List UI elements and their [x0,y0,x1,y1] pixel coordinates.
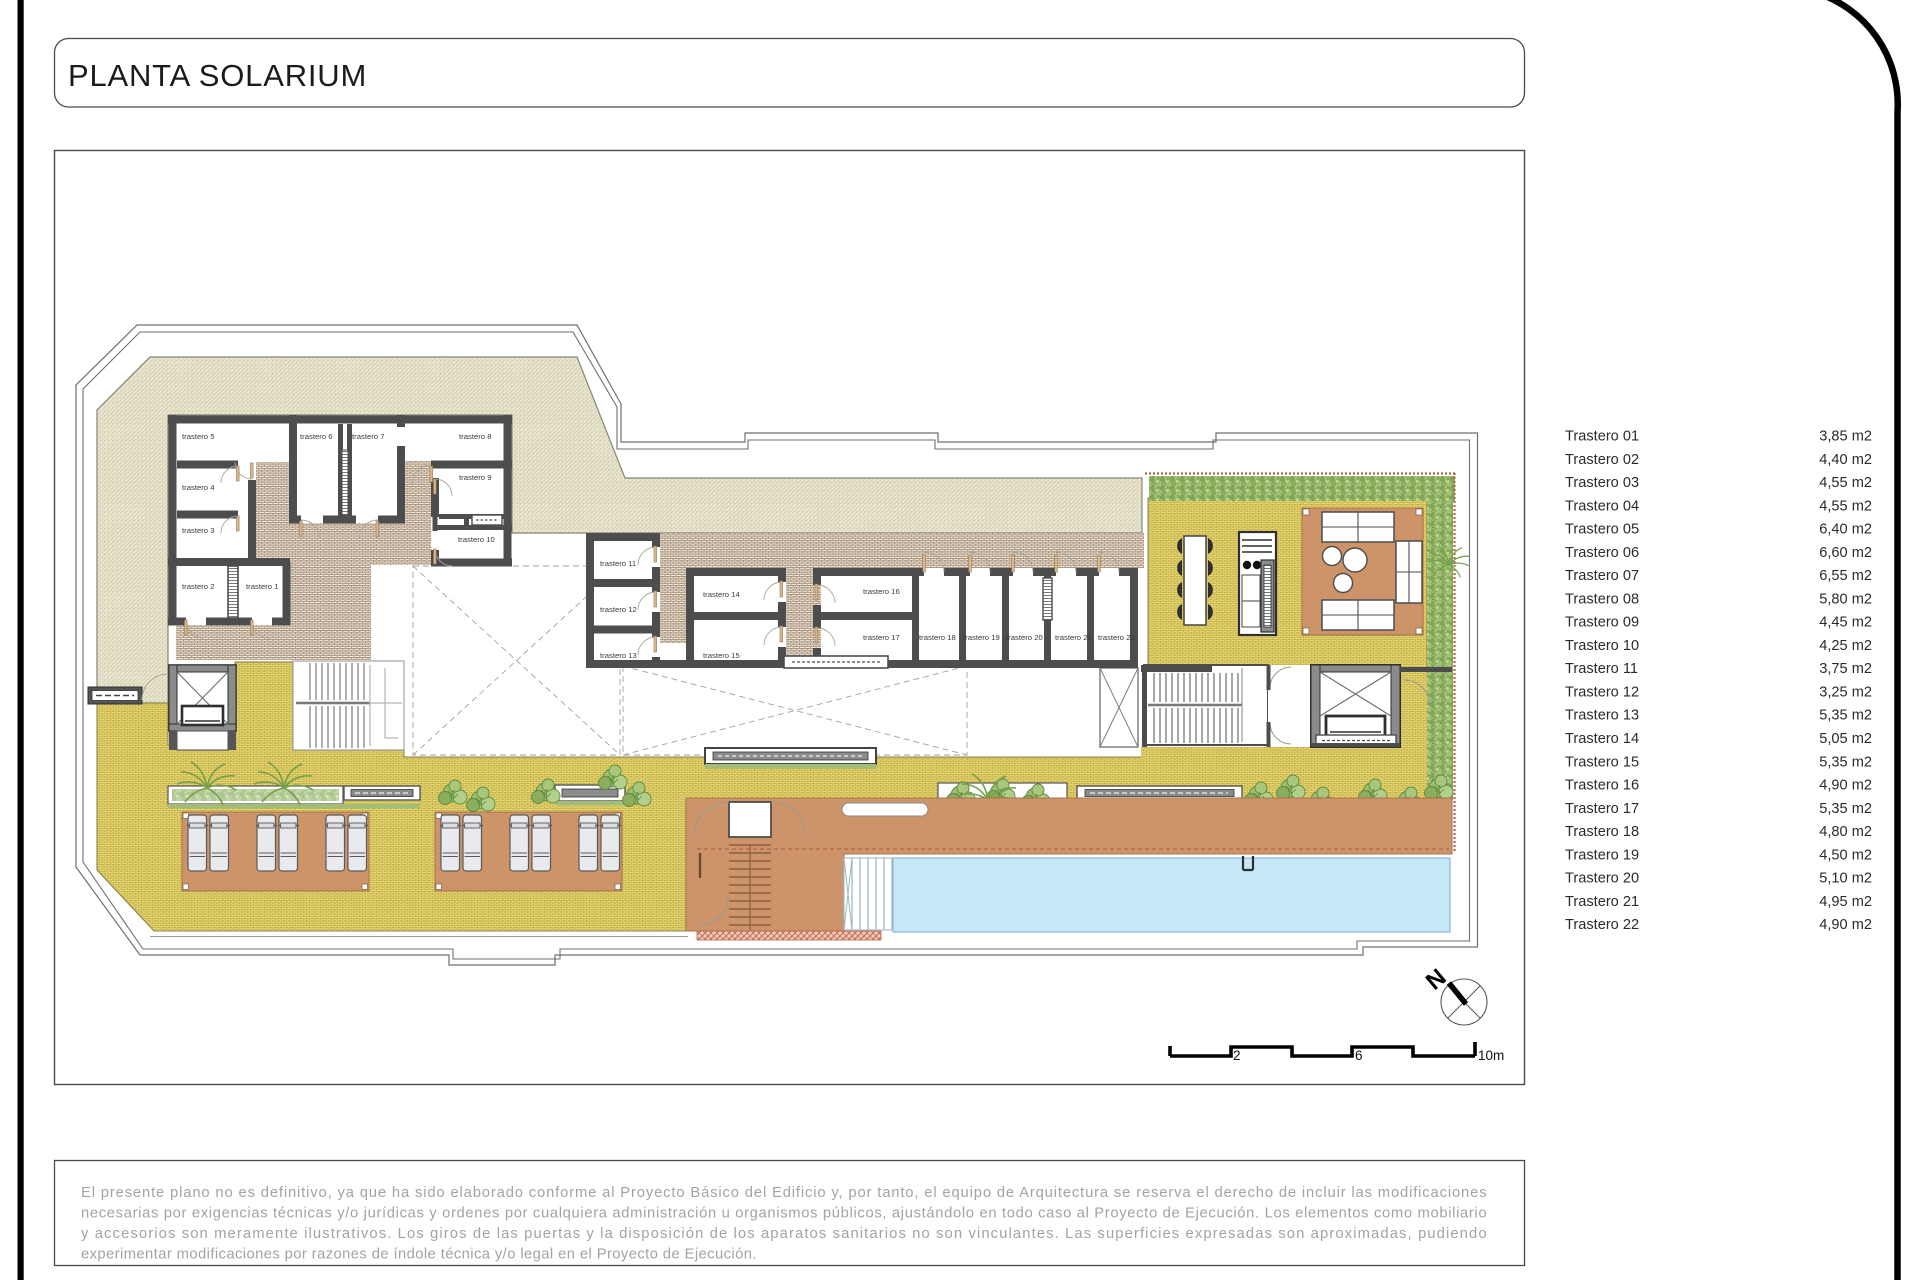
svg-text:Trastero 08: Trastero 08 [1565,591,1639,607]
svg-text:4,25 m2: 4,25 m2 [1819,638,1872,654]
svg-text:trastero 7: trastero 7 [352,432,384,441]
svg-text:trastero 2: trastero 2 [182,582,214,591]
svg-text:trastero 15: trastero 15 [703,651,740,660]
svg-text:6,40 m2: 6,40 m2 [1819,522,1872,538]
svg-text:Trastero 22: Trastero 22 [1565,917,1639,933]
svg-text:Trastero 14: Trastero 14 [1565,731,1639,747]
svg-text:4,40 m2: 4,40 m2 [1819,452,1872,468]
svg-text:Trastero 10: Trastero 10 [1565,638,1639,654]
svg-text:trastero 22: trastero 22 [1098,633,1135,642]
svg-text:10m: 10m [1478,1048,1504,1063]
svg-text:4,50 m2: 4,50 m2 [1819,847,1872,863]
svg-text:Trastero 20: Trastero 20 [1565,871,1639,887]
svg-text:trastero 12: trastero 12 [600,605,637,614]
svg-text:Trastero 11: Trastero 11 [1565,661,1638,677]
svg-text:trastero 3: trastero 3 [182,526,214,535]
svg-text:5,80 m2: 5,80 m2 [1819,591,1872,607]
svg-text:trastero 11: trastero 11 [600,559,636,568]
svg-text:Trastero 21: Trastero 21 [1565,894,1639,910]
svg-text:trastero 21: trastero 21 [1055,633,1092,642]
svg-text:trastero 10: trastero 10 [458,535,495,544]
svg-text:Trastero 02: Trastero 02 [1565,452,1639,468]
svg-text:4,90 m2: 4,90 m2 [1819,917,1872,933]
svg-text:5,10 m2: 5,10 m2 [1819,871,1872,887]
svg-text:El presente plano no es defini: El presente plano no es definitivo, ya q… [81,1185,1487,1201]
svg-text:5,05 m2: 5,05 m2 [1819,731,1872,747]
svg-text:3,25 m2: 3,25 m2 [1819,685,1872,701]
svg-text:trastero 1: trastero 1 [246,582,278,591]
svg-text:Trastero 09: Trastero 09 [1565,615,1639,631]
svg-text:trastero 5: trastero 5 [182,432,214,441]
svg-text:4,45 m2: 4,45 m2 [1819,615,1872,631]
svg-text:6,55 m2: 6,55 m2 [1819,568,1872,584]
svg-text:trastero 17: trastero 17 [863,633,900,642]
svg-text:5,35 m2: 5,35 m2 [1819,708,1872,724]
svg-text:3,75 m2: 3,75 m2 [1819,661,1872,677]
svg-text:4,80 m2: 4,80 m2 [1819,824,1872,840]
svg-text:Trastero 06: Trastero 06 [1565,545,1639,561]
svg-text:2: 2 [1233,1048,1241,1063]
svg-text:6: 6 [1355,1048,1363,1063]
svg-text:Trastero 19: Trastero 19 [1565,847,1639,863]
svg-text:4,95 m2: 4,95 m2 [1819,894,1872,910]
svg-text:Trastero 12: Trastero 12 [1565,685,1639,701]
svg-text:Trastero 05: Trastero 05 [1565,522,1639,538]
svg-text:Trastero 04: Trastero 04 [1565,498,1639,514]
svg-text:Trastero 01: Trastero 01 [1565,429,1639,445]
svg-text:PLANTA SOLARIUM: PLANTA SOLARIUM [68,58,367,93]
svg-text:5,35 m2: 5,35 m2 [1819,754,1872,770]
svg-text:trastero 18: trastero 18 [919,633,956,642]
svg-text:3,85 m2: 3,85 m2 [1819,429,1872,445]
svg-text:trastero 20: trastero 20 [1006,633,1043,642]
svg-text:Trastero 17: Trastero 17 [1565,801,1639,817]
svg-text:Trastero 03: Trastero 03 [1565,475,1639,491]
svg-text:4,55 m2: 4,55 m2 [1819,475,1872,491]
svg-text:trastero 13: trastero 13 [600,651,637,660]
svg-text:trastero 9: trastero 9 [459,473,491,482]
svg-text:necesarias por exigencias técn: necesarias por exigencias técnicas y/o j… [81,1206,1487,1222]
svg-text:trastero 4: trastero 4 [182,483,215,492]
svg-text:4,90 m2: 4,90 m2 [1819,778,1872,794]
svg-text:experimentar modificaciones po: experimentar modificaciones por razones … [81,1247,757,1263]
svg-text:Trastero 18: Trastero 18 [1565,824,1639,840]
svg-text:trastero 16: trastero 16 [863,587,900,596]
svg-text:6,60 m2: 6,60 m2 [1819,545,1872,561]
svg-text:trastero 8: trastero 8 [459,432,491,441]
svg-text:5,35 m2: 5,35 m2 [1819,801,1872,817]
svg-text:Trastero 16: Trastero 16 [1565,778,1639,794]
svg-text:trastero 14: trastero 14 [703,590,740,599]
svg-text:Trastero 13: Trastero 13 [1565,708,1639,724]
svg-text:4,55 m2: 4,55 m2 [1819,498,1872,514]
svg-text:y accesorios son meramente ilu: y accesorios son meramente ilustrativos.… [81,1226,1487,1242]
svg-text:trastero 19: trastero 19 [963,633,1000,642]
svg-text:Trastero 07: Trastero 07 [1565,568,1639,584]
svg-text:Trastero 15: Trastero 15 [1565,754,1639,770]
svg-text:trastero 6: trastero 6 [300,432,332,441]
